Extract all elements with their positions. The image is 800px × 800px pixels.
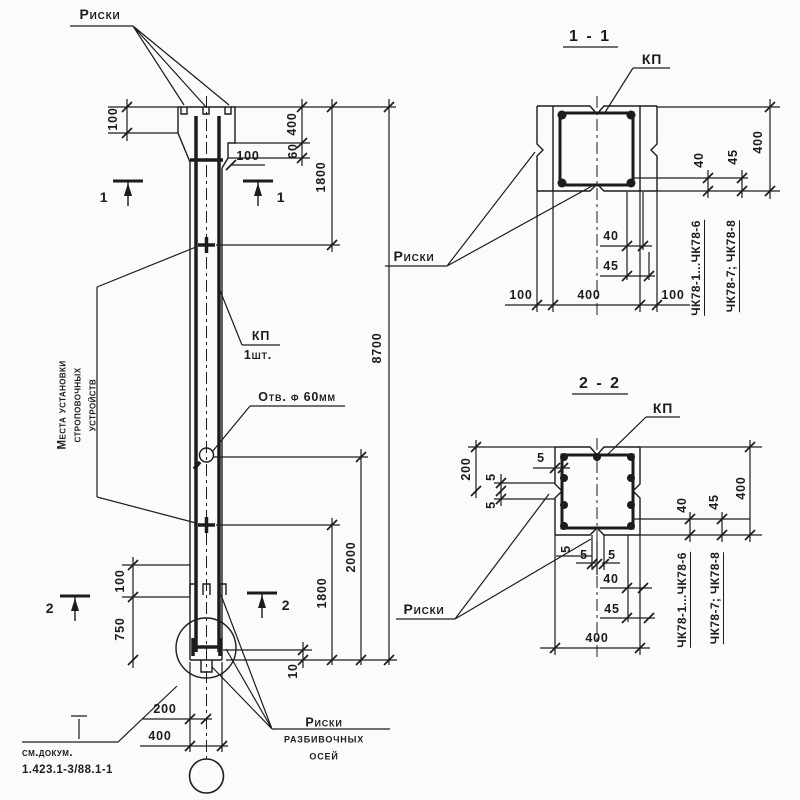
section1-title: 1 - 1 [569, 28, 611, 46]
dim-10: 10 [286, 663, 300, 679]
s2-dim-400-v: 400 [734, 476, 748, 499]
s1-dim-40-v: 40 [692, 152, 706, 168]
dim-750: 750 [113, 617, 127, 640]
cut-2-left-label: 2 [46, 600, 55, 616]
dim-60-top: 60 [286, 143, 300, 159]
drawing-linework [0, 0, 800, 800]
dim-100-bot-left: 100 [113, 569, 127, 592]
strop-places-label: Места установки строповочных устройств [56, 361, 101, 450]
s2-dim-5-bot-c: 5 [608, 548, 616, 562]
hole-label: Отв. ф 60мм [258, 390, 336, 404]
strop-bracket [97, 247, 196, 523]
cut-1-right-label: 1 [277, 189, 286, 205]
s1-series-label-a: ЧК78-1...ЧК78-6 [689, 220, 705, 316]
s1-dim-400-bottom: 400 [577, 288, 600, 302]
dim-200-base: 200 [153, 702, 176, 716]
s2-dim-5-left-b: 5 [484, 501, 498, 509]
kp-leader [219, 288, 280, 345]
s2-dim-5-top: 5 [537, 451, 545, 465]
s2-dim-45-v: 45 [707, 494, 721, 510]
s2-dim-40-v: 40 [675, 497, 689, 513]
elevation-dim-lines [108, 99, 397, 752]
dim-100-cap: 100 [236, 149, 259, 163]
s1-dim-45-v: 45 [726, 149, 740, 165]
s1-series-label-b: ЧК78-7; ЧК78-8 [724, 220, 740, 312]
section1-riski-label: Риски [393, 248, 434, 264]
section2-riski-label: Риски [403, 601, 444, 617]
s2-dim-45-h: 45 [604, 602, 620, 616]
dim-400-base: 400 [148, 729, 171, 743]
section2-kp-label: КП [653, 400, 673, 416]
s2-series-label-a: ЧК78-1...ЧК78-6 [675, 552, 691, 648]
s1-dim-100-left: 100 [509, 288, 532, 302]
drawing-sheet: Риски 100 400 60 100 1800 8700 1 1 КП 1ш… [0, 0, 800, 800]
dim-8700: 8700 [370, 332, 384, 363]
s2-dim-5-bot-b: 5 [580, 548, 588, 562]
section1-dims [385, 47, 780, 312]
dim-1800-top: 1800 [314, 161, 328, 192]
riski-top-label: Риски [79, 6, 120, 22]
dim-100-top-left: 100 [106, 107, 120, 130]
hole-leader [212, 406, 345, 452]
s1-dim-40-h: 40 [603, 229, 619, 243]
s2-dim-200: 200 [459, 457, 473, 480]
dim-400-top: 400 [285, 112, 299, 135]
s2-dim-5-bot-a: 5 [559, 545, 573, 553]
cut-1-left-label: 1 [100, 189, 109, 205]
riski-top-leaders [70, 26, 229, 107]
kp-qty-label: 1шт. [244, 348, 272, 362]
cut-2-right-label: 2 [282, 597, 291, 613]
axis-bubble [190, 759, 224, 793]
see-document-note: см.докум. 1.423.1-3/88.1-1 [22, 745, 113, 778]
dim-2000: 2000 [344, 541, 358, 572]
s2-dim-40-h: 40 [603, 572, 619, 586]
kp-label: КП [252, 329, 270, 343]
s2-dim-400-bottom: 400 [585, 631, 608, 645]
razb-axes-label: Риски разбивочных осей [284, 715, 364, 764]
s1-dim-400-v: 400 [751, 130, 765, 153]
section2-title: 2 - 2 [579, 375, 621, 393]
s2-dim-5-left-a: 5 [484, 473, 498, 481]
s1-dim-45-h: 45 [603, 259, 619, 273]
s2-series-label-b: ЧК78-7; ЧК78-8 [708, 552, 724, 644]
dim-1800-bot: 1800 [315, 577, 329, 608]
s1-dim-100-right: 100 [661, 288, 684, 302]
section1-kp-label: КП [642, 51, 662, 67]
